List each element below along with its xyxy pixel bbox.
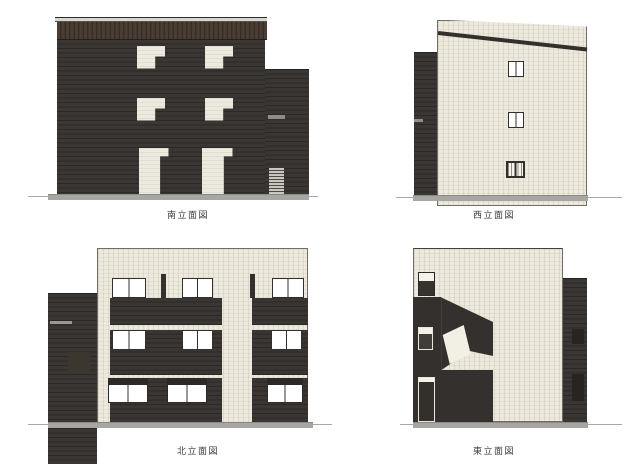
window [508, 112, 524, 128]
south-elevation-drawing: 南立面図 [28, 10, 328, 222]
vent-panel [572, 374, 584, 401]
louver-window [506, 161, 525, 178]
parapet-band [57, 22, 267, 41]
sliding-window [267, 378, 304, 403]
sliding-window [108, 378, 148, 403]
roof-coping [55, 17, 267, 22]
ground-strip [413, 422, 588, 428]
window [182, 278, 213, 298]
vent-bar [268, 115, 285, 119]
service-ladder [269, 168, 284, 197]
spandrel-band [110, 298, 222, 325]
entrance-door [418, 377, 435, 422]
siding-wall-wing [414, 52, 438, 195]
window [508, 61, 524, 77]
window [182, 330, 213, 350]
wing-panel [68, 352, 90, 372]
north-elevation-drawing: 北立面図 [28, 240, 338, 455]
vent-panel [572, 329, 584, 344]
ground-strip [413, 195, 588, 201]
sliding-window [167, 378, 207, 403]
ground-strip [48, 194, 309, 200]
window [112, 278, 146, 298]
balcony-divider [161, 274, 166, 299]
vent-bar [414, 119, 423, 122]
vent-bar [50, 321, 72, 324]
east-elevation-drawing: 東立面図 [390, 240, 630, 455]
elevation-label: 西立面図 [434, 208, 554, 221]
window [418, 327, 433, 350]
elevation-label: 北立面図 [138, 444, 258, 457]
west-elevation-drawing: 西立面図 [390, 10, 630, 222]
elevation-drawing-sheet: 南立面図 西立面図 [0, 0, 640, 464]
siding-wall-wing [48, 293, 96, 464]
window [418, 272, 435, 296]
elevation-label: 東立面図 [434, 444, 554, 457]
ground-strip [48, 422, 313, 428]
balcony-divider [250, 274, 255, 299]
spandrel-band [252, 298, 308, 325]
window [271, 330, 302, 350]
siding-wall-main [57, 40, 266, 197]
window [272, 278, 304, 298]
window [112, 330, 146, 350]
elevation-label: 南立面図 [128, 208, 248, 221]
